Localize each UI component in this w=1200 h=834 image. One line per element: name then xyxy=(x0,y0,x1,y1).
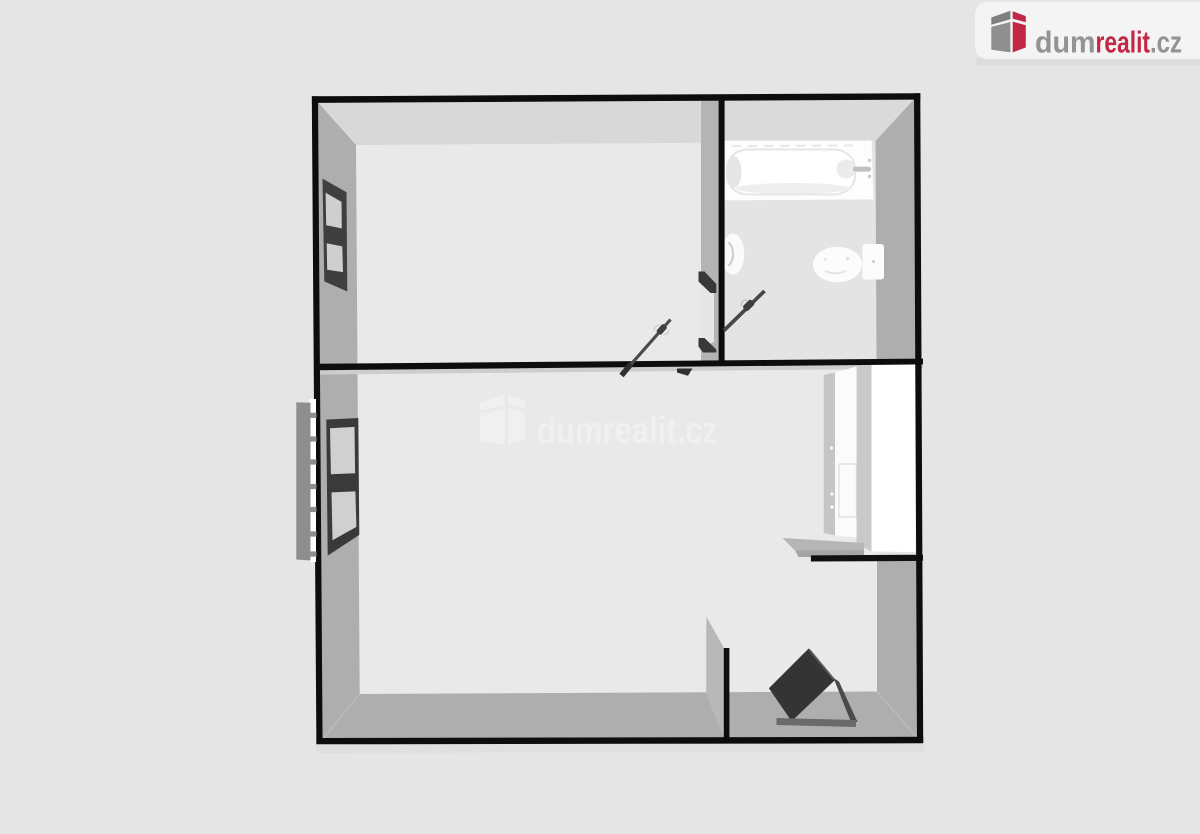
svg-text:dum: dum xyxy=(1035,25,1096,60)
svg-text:realit: realit xyxy=(1096,25,1151,60)
svg-text:dumrealit.cz: dumrealit.cz xyxy=(537,410,718,452)
svg-text:.cz: .cz xyxy=(1150,25,1182,60)
